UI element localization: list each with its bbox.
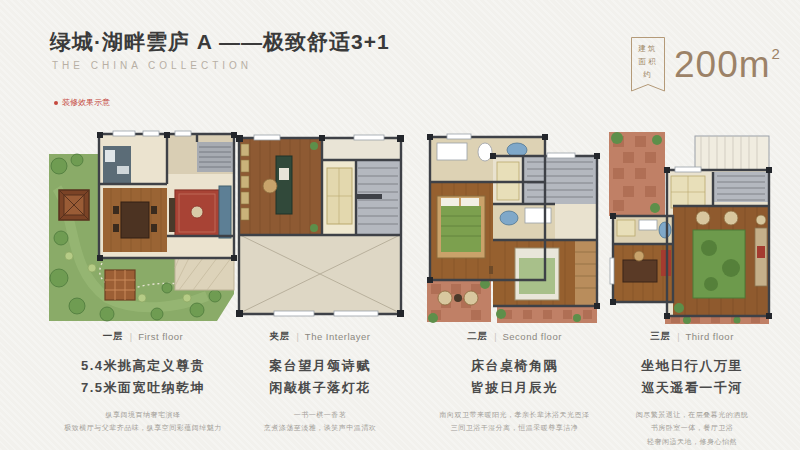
floor-label-second: 二层 | Second floor bbox=[467, 330, 562, 343]
disclaimer-text: 装修效果示意 bbox=[62, 97, 110, 108]
caption-line: 一书一棋一香茗 bbox=[264, 408, 377, 421]
floor-caption-interlayer: 一书一棋一香茗 烹煮涤荡至淡雅，谈笑声中温清欢 bbox=[264, 408, 377, 435]
floor-label-first: 一层 | First floor bbox=[103, 330, 183, 343]
caption-line: 书房卧室一体，餐厅卫浴 bbox=[636, 421, 749, 434]
label-divider: | bbox=[677, 332, 679, 342]
garden-pavilion bbox=[59, 190, 89, 220]
floor-plan-second bbox=[427, 128, 603, 324]
floor-label-cn: 二层 bbox=[467, 330, 488, 343]
headline-line: 闲敲棋子落灯花 bbox=[269, 377, 371, 399]
area-number: 200m bbox=[674, 44, 771, 85]
floor-label-en: Second floor bbox=[503, 331, 562, 342]
floor-plan-first bbox=[47, 128, 239, 324]
headline-line: 床台桌椅角隅 bbox=[471, 355, 558, 377]
floor-label-en: Third floor bbox=[686, 331, 734, 342]
headline-line: 巡天遥看一千河 bbox=[641, 377, 743, 399]
floor-label-cn: 夹层 bbox=[270, 330, 291, 343]
floor-plan-third-image bbox=[609, 128, 775, 324]
floor-plan-first-image bbox=[47, 128, 239, 324]
area-badge-label: 建筑面积约 bbox=[636, 43, 660, 81]
area-value: 200m2 bbox=[674, 44, 781, 86]
floor-label-cn: 一层 bbox=[103, 330, 124, 343]
headline-line: 案台望月颂诗赋 bbox=[269, 355, 371, 377]
floor-label-en: The Interlayer bbox=[305, 331, 371, 342]
floor-headline-interlayer: 案台望月颂诗赋 闲敲棋子落灯花 bbox=[269, 355, 371, 399]
area-badge: 建筑面积约 bbox=[630, 36, 666, 94]
caption-line: 三间卫浴干湿分离，恒温采暖尊享洁净 bbox=[440, 421, 590, 434]
caption-line: 纵享阔境百纳奢宅演绎 bbox=[64, 408, 222, 421]
floor-caption-third: 阅尽繁景退让，在层叠暮光的洒脱 书房卧室一体，餐厅卫浴 轻奢闲适天地，修身心怡然 bbox=[636, 408, 749, 448]
floor-headline-second: 床台桌椅角隅 皆披日月辰光 bbox=[471, 355, 558, 399]
page-title: 绿城·湖畔雲庐 A ——极致舒适3+1 bbox=[50, 28, 390, 56]
caption-line: 阅尽繁景退让，在层叠暮光的洒脱 bbox=[636, 408, 749, 421]
floor-label-cn: 三层 bbox=[650, 330, 671, 343]
caption-line: 极致横厅与父辈齐品味，纵享空间彩蕴阔绰魅力 bbox=[64, 421, 222, 434]
floor-column-first: 一层 | First floor 5.4米挑高定义尊贵 7.5米面宽吐纳乾坤 纵… bbox=[44, 128, 242, 435]
floor-label-third: 三层 | Third floor bbox=[650, 330, 734, 343]
floor-headline-third: 坐地日行八万里 巡天遥看一千河 bbox=[641, 355, 743, 399]
floor-plan-second-image bbox=[427, 128, 603, 324]
caption-line: 南向双卫带来暖阳光，孝亲长辈沐浴天光恩泽 bbox=[440, 408, 590, 421]
floor-plan-interlayer-image bbox=[234, 128, 406, 320]
label-divider: | bbox=[130, 332, 132, 342]
floor-label-en: First floor bbox=[138, 331, 183, 342]
floor-column-third: 三层 | Third floor 坐地日行八万里 巡天遥看一千河 阅尽繁景退让，… bbox=[606, 128, 778, 448]
caption-line: 轻奢闲适天地，修身心怡然 bbox=[636, 435, 749, 448]
headline-line: 坐地日行八万里 bbox=[641, 355, 743, 377]
floor-column-second: 二层 | Second floor 床台桌椅角隅 皆披日月辰光 南向双卫带来暖阳… bbox=[422, 128, 607, 435]
floor-column-interlayer: 夹层 | The Interlayer 案台望月颂诗赋 闲敲棋子落灯花 一书一棋… bbox=[230, 128, 410, 435]
area-superscript: 2 bbox=[772, 45, 781, 62]
label-divider: | bbox=[297, 332, 299, 342]
floor-caption-first: 纵享阔境百纳奢宅演绎 极致横厅与父辈齐品味，纵享空间彩蕴阔绰魅力 bbox=[64, 408, 222, 435]
floor-label-interlayer: 夹层 | The Interlayer bbox=[270, 330, 371, 343]
floor-headline-first: 5.4米挑高定义尊贵 7.5米面宽吐纳乾坤 bbox=[81, 355, 205, 399]
bullet-dot-icon bbox=[54, 101, 58, 105]
caption-line: 烹煮涤荡至淡雅，谈笑声中温清欢 bbox=[264, 421, 377, 434]
page-subtitle: THE CHINA COLLECTION bbox=[52, 60, 252, 71]
floor-caption-second: 南向双卫带来暖阳光，孝亲长辈沐浴天光恩泽 三间卫浴干湿分离，恒温采暖尊享洁净 bbox=[440, 408, 590, 435]
headline-line: 7.5米面宽吐纳乾坤 bbox=[81, 377, 205, 399]
headline-line: 5.4米挑高定义尊贵 bbox=[81, 355, 205, 377]
label-divider: | bbox=[494, 332, 496, 342]
headline-line: 皆披日月辰光 bbox=[471, 377, 558, 399]
disclaimer-note: 装修效果示意 bbox=[54, 97, 110, 108]
floor-plan-third bbox=[609, 128, 775, 324]
floor-plan-interlayer bbox=[234, 128, 406, 324]
